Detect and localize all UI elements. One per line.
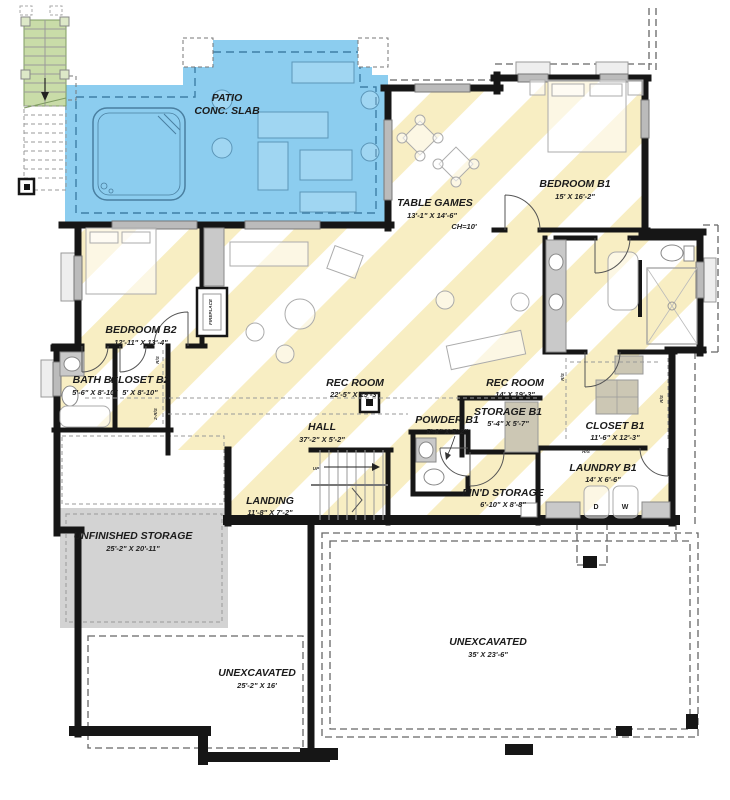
label-landing: LANDING xyxy=(246,495,294,507)
window-patio-2 xyxy=(245,221,320,229)
dims-closet-b2: 5' X 8'-10" xyxy=(122,388,158,397)
stair-post-2 xyxy=(60,17,69,26)
washer xyxy=(613,486,638,518)
dims-bedroom-b1: 15' X 16'-2" xyxy=(555,192,595,201)
label-rs-2: R/S xyxy=(659,394,664,403)
window-table-games xyxy=(415,84,470,92)
dims-table-games: 13'-1" X 14'-6" xyxy=(407,211,457,220)
label-rs-5: 2-R/S xyxy=(153,407,158,421)
dims-find-storage: 6'-10" X 8'-8" xyxy=(480,500,526,509)
label-laundry-b1: LAUNDRY B1 xyxy=(569,462,636,474)
dryer xyxy=(584,486,609,518)
label-rs-1: R/S xyxy=(560,372,565,381)
label-unexcavated-center: UNEXCAVATED xyxy=(218,667,296,679)
footing-stub-3 xyxy=(686,714,698,729)
label-unfinished-storage: UNFINISHED STORAGE xyxy=(74,530,194,542)
dims-unexcavated-right: 35' X 23'-6" xyxy=(468,650,508,659)
label-hall: HALL xyxy=(308,421,336,433)
label-rec-room-main: REC ROOM xyxy=(326,377,384,389)
bath-b1-tub xyxy=(608,252,638,310)
wet-bar-counter xyxy=(204,228,224,286)
label-fireplace: FIREPLACE xyxy=(208,298,213,325)
label-rs-4: R/S xyxy=(155,355,160,364)
label-patio-2: CONC. SLAB xyxy=(194,105,260,117)
laundry-counter-left xyxy=(546,502,580,518)
floor-plan-svg: PATIO CONC. SLAB TABLE GAMES 13'-1" X 14… xyxy=(0,0,730,800)
dims-storage-b1: 5'-4" X 5'-7" xyxy=(487,419,529,428)
dims-powder-b1: 5'-8" X 5'-2" xyxy=(426,427,468,436)
label-find-storage: FIN'D STORAGE xyxy=(462,487,545,499)
dims-unexcavated-center: 25'-2" X 16' xyxy=(236,681,277,690)
window-bedroom-b1-east xyxy=(641,100,649,138)
dims-bedroom-b2: 12'-11" X 13'-4" xyxy=(114,338,168,347)
floor-plan: PATIO CONC. SLAB TABLE GAMES 13'-1" X 14… xyxy=(0,0,730,800)
label-unexcavated-right: UNEXCAVATED xyxy=(449,636,527,648)
exterior-stairs xyxy=(19,6,69,194)
footing-stub-2 xyxy=(616,726,632,736)
bath-b2-tub xyxy=(60,406,110,427)
top-left-marker-2 xyxy=(50,6,62,15)
label-patio: PATIO xyxy=(212,92,243,104)
label-powder-b1: POWDER B1 xyxy=(415,414,479,426)
dims-hall: 37'-2" X 5'-2" xyxy=(299,435,345,444)
footing-stub-1 xyxy=(505,744,533,755)
label-table-games: TABLE GAMES xyxy=(397,197,473,209)
stair-post-1 xyxy=(21,17,30,26)
dims-bath-b2: 5'-6" X 8'-10" xyxy=(72,388,118,397)
deck-post-2 xyxy=(358,38,388,67)
label-dryer: D xyxy=(593,504,598,511)
label-ceiling-height: CH=10' xyxy=(451,222,477,231)
bath-b1-sink-2 xyxy=(549,294,563,310)
window-bedroom-b2 xyxy=(74,256,82,300)
label-rs-3: R/S xyxy=(582,449,591,454)
bath-b1-toilet xyxy=(661,245,683,261)
dims-landing: 11'-8" X 7'-2" xyxy=(247,508,293,517)
label-storage-b1: STORAGE B1 xyxy=(474,406,542,418)
bath-b1-toilet-tank xyxy=(684,246,694,261)
unexcavated-right-dash-inner xyxy=(330,541,690,729)
label-bedroom-b1: BEDROOM B1 xyxy=(539,178,610,190)
dims-closet-b1: 11'-6" X 12'-3" xyxy=(590,433,640,442)
laundry-counter-right xyxy=(642,502,670,518)
powder-sink xyxy=(419,442,433,458)
dims-laundry-b1: 14' X 6'-6" xyxy=(585,475,621,484)
stairs-below-dash xyxy=(24,106,66,190)
bath-b2-sink xyxy=(64,357,80,371)
label-closet-b1: CLOSET B1 xyxy=(586,420,645,432)
label-washer: W xyxy=(622,504,629,511)
label-bedroom-b2: BEDROOM B2 xyxy=(105,324,176,336)
stair-post-3 xyxy=(21,70,30,79)
top-left-marker-1 xyxy=(20,6,32,15)
stair-post-4 xyxy=(60,70,69,79)
dims-rec-room-main: 22'-5" X 19'-3" xyxy=(329,390,380,399)
label-rec-room-small: REC ROOM xyxy=(486,377,544,389)
patio-slider xyxy=(384,120,392,200)
patio-area xyxy=(48,38,388,225)
unexcavated-right-dash-outer xyxy=(322,533,698,737)
unfinished-storage-fill xyxy=(60,508,228,628)
label-closet-b2: CLOSET B2 xyxy=(111,374,170,386)
dims-rec-room-small: 14' X 19'-3" xyxy=(495,390,535,399)
dims-unfinished-storage: 25'-2" X 20'-11" xyxy=(105,544,160,553)
stair-footing-inner xyxy=(24,184,30,190)
bath-b1-sink-1 xyxy=(549,254,563,270)
deck-post-1 xyxy=(183,38,213,67)
powder-toilet xyxy=(424,469,444,485)
post-footing xyxy=(583,556,597,568)
label-up: UP xyxy=(313,466,320,471)
